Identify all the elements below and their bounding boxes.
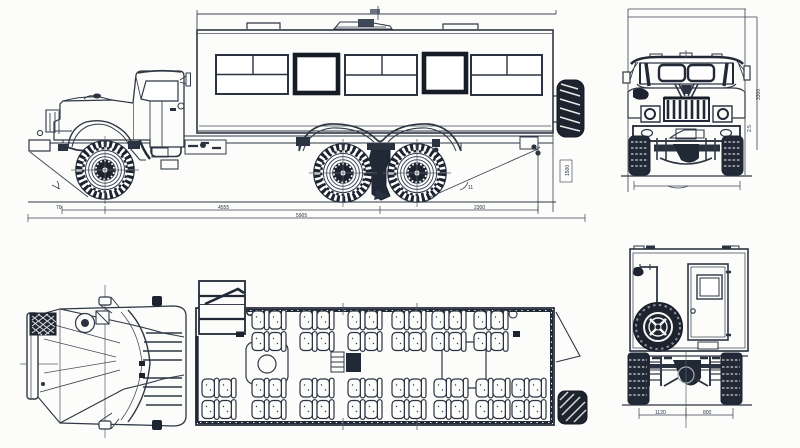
svg-text:70: 70 <box>56 205 62 211</box>
svg-text:4555: 4555 <box>218 205 229 211</box>
svg-text:5905: 5905 <box>296 213 307 219</box>
svg-text:3300: 3300 <box>756 89 762 100</box>
svg-text:2300: 2300 <box>474 205 485 211</box>
svg-text:2.5: 2.5 <box>747 125 753 132</box>
svg-text:1500: 1500 <box>565 165 571 176</box>
svg-text:800: 800 <box>703 410 712 416</box>
svg-text:1120: 1120 <box>655 410 666 416</box>
svg-text:11: 11 <box>468 185 473 191</box>
